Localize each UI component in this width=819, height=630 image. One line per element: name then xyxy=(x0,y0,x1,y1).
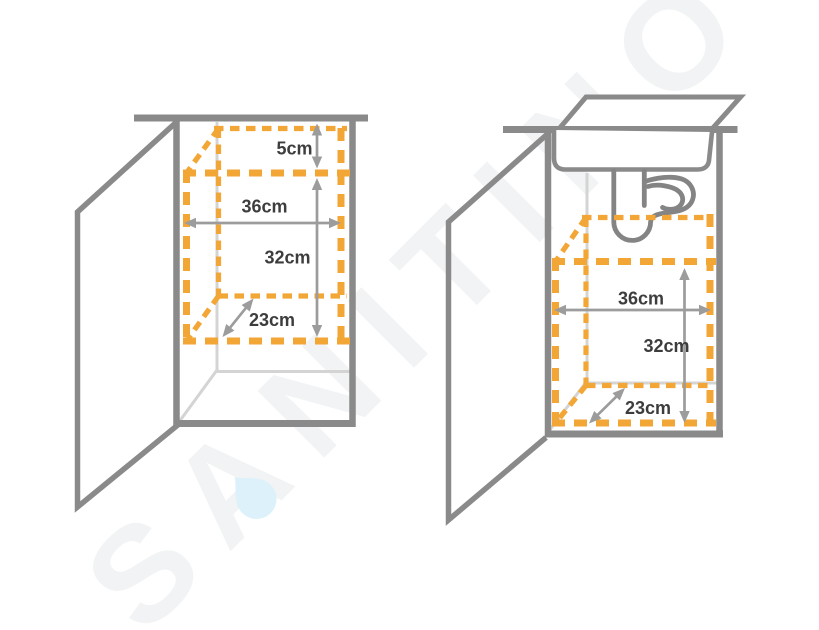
svg-text:23cm: 23cm xyxy=(625,398,671,418)
svg-text:5cm: 5cm xyxy=(276,139,312,159)
svg-text:32cm: 32cm xyxy=(264,248,310,268)
svg-text:23cm: 23cm xyxy=(249,310,295,330)
svg-text:32cm: 32cm xyxy=(643,336,689,356)
svg-text:36cm: 36cm xyxy=(618,289,664,309)
svg-text:36cm: 36cm xyxy=(241,197,287,217)
